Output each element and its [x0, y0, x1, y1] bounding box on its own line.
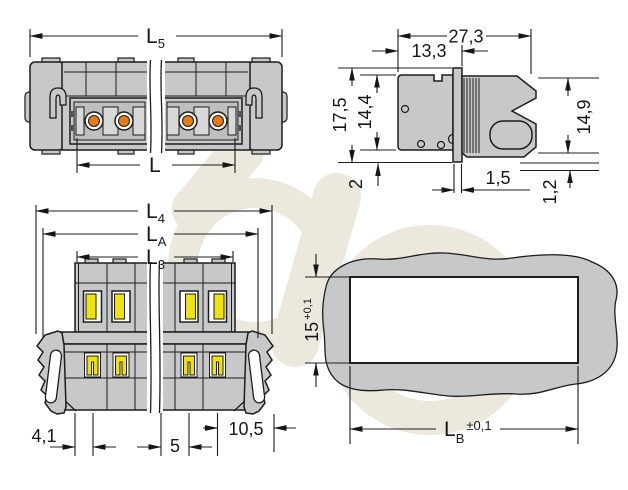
dim-lip-height: 1,2	[540, 179, 560, 204]
side-view: 27,3 13,3 17,5 14,4 14,9 2 1,5 1,2	[330, 27, 599, 205]
dim-depth-front: 13,3	[411, 41, 446, 61]
connector-dimension-drawing: L5 L 27,3 13,3 17,5	[0, 0, 628, 490]
dim-l3-label: L3	[146, 246, 165, 272]
cutout-opening	[350, 277, 578, 363]
dim-flange-thickness: 1,5	[485, 168, 510, 188]
dim-height-plug: 14,9	[574, 99, 594, 134]
dim-l-label: L	[149, 154, 161, 177]
dim-cutout-width: LB±0,1	[444, 418, 492, 446]
dim-depth-total: 27,3	[448, 27, 483, 47]
technical-drawing-canvas: L5 L 27,3 13,3 17,5	[0, 0, 628, 490]
dim-height-body: 14,4	[355, 94, 375, 129]
dim-pole-to-edge: 10,5	[228, 419, 263, 439]
dim-bottom-offset: 2	[346, 179, 366, 189]
dim-l5-label: L5	[146, 25, 165, 51]
dim-edge-to-pole: 4,1	[31, 426, 56, 446]
dim-height-total: 17,5	[330, 97, 350, 132]
dim-pitch: 5	[170, 436, 180, 456]
